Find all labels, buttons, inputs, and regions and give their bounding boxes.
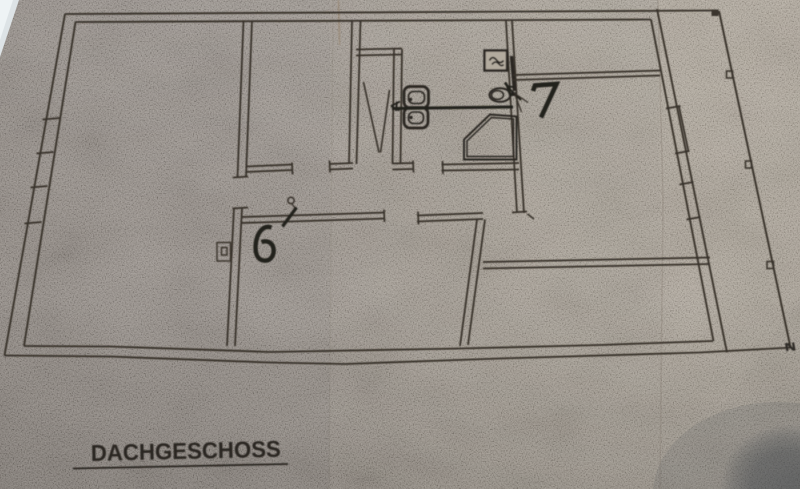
svg-text:DACHGESCHOSS: DACHGESCHOSS xyxy=(91,436,282,466)
